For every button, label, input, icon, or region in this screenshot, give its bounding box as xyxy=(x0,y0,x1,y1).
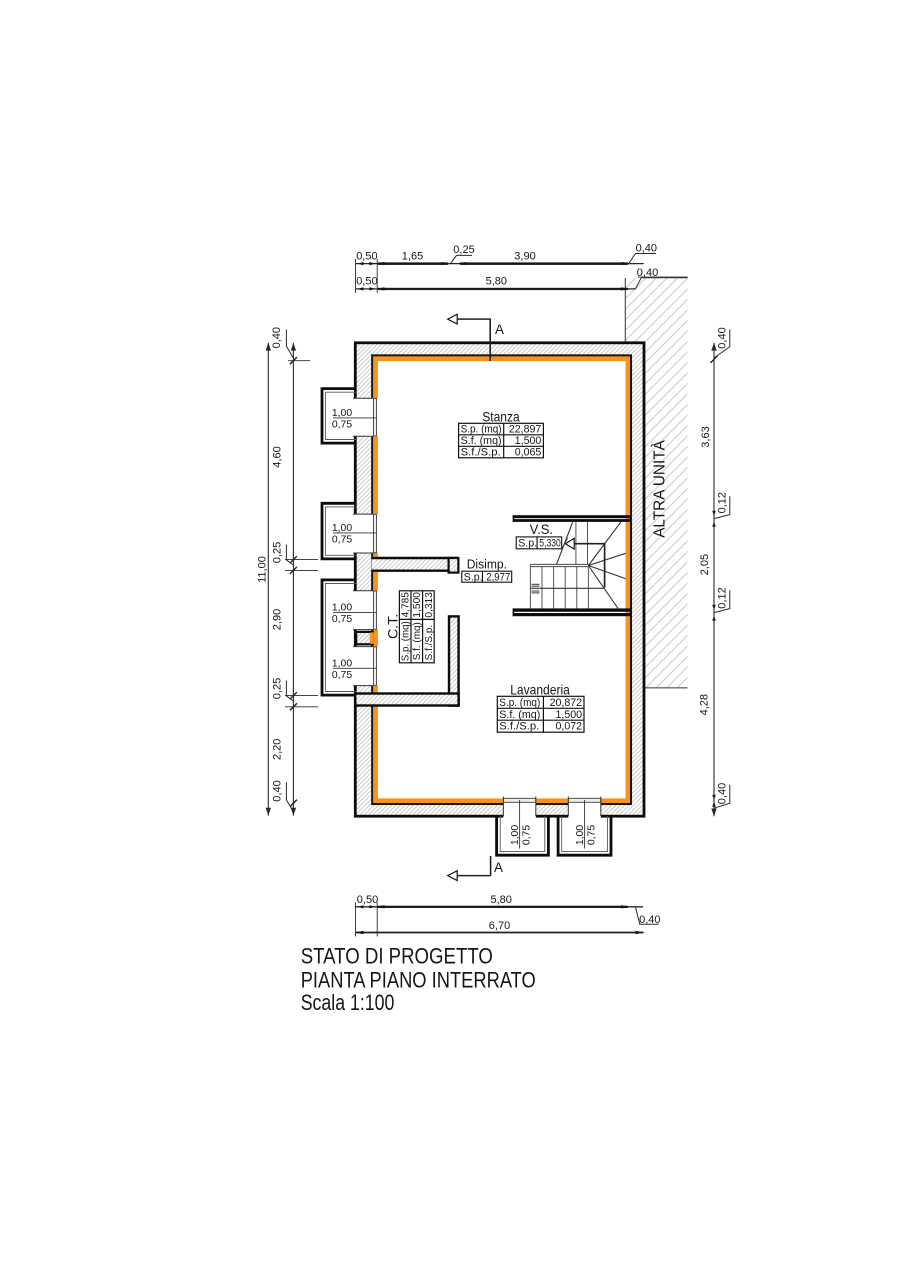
svg-text:Stanza: Stanza xyxy=(482,410,520,425)
svg-text:0,40: 0,40 xyxy=(717,327,729,348)
svg-text:PIANTA PIANO INTERRATO: PIANTA PIANO INTERRATO xyxy=(301,967,536,992)
svg-text:S.f./S.p.: S.f./S.p. xyxy=(424,625,435,661)
svg-text:V.S.: V.S. xyxy=(530,521,553,537)
svg-text:S.p. (mq): S.p. (mq) xyxy=(461,424,502,436)
svg-text:2,90: 2,90 xyxy=(272,609,284,630)
svg-text:3,90: 3,90 xyxy=(514,250,535,262)
svg-text:S.p. (mq): S.p. (mq) xyxy=(499,697,540,709)
svg-text:2,20: 2,20 xyxy=(272,739,284,760)
svg-text:1,00: 1,00 xyxy=(332,408,352,419)
svg-text:A: A xyxy=(494,860,503,875)
svg-text:0,40: 0,40 xyxy=(271,327,283,348)
svg-text:S.p.: S.p. xyxy=(464,571,483,583)
svg-text:0,065: 0,065 xyxy=(515,447,542,459)
svg-text:A: A xyxy=(495,322,504,337)
svg-text:S.f. (mq): S.f. (mq) xyxy=(499,709,540,721)
svg-text:ALTRA UNITÀ: ALTRA UNITÀ xyxy=(652,440,669,538)
svg-text:0,75: 0,75 xyxy=(521,825,532,845)
svg-text:1,65: 1,65 xyxy=(402,250,423,262)
svg-text:0,75: 0,75 xyxy=(332,535,352,546)
svg-text:1,500: 1,500 xyxy=(555,709,582,721)
svg-text:1,500: 1,500 xyxy=(412,592,423,618)
svg-text:0,25: 0,25 xyxy=(272,678,284,699)
svg-text:1,00: 1,00 xyxy=(575,825,586,845)
svg-text:S.f./S.p.: S.f./S.p. xyxy=(499,721,539,733)
svg-text:5,80: 5,80 xyxy=(490,894,511,906)
svg-text:0,072: 0,072 xyxy=(555,721,582,733)
svg-text:4,60: 4,60 xyxy=(272,446,284,467)
svg-text:0,75: 0,75 xyxy=(332,670,352,681)
svg-text:0,75: 0,75 xyxy=(332,614,352,625)
svg-text:0,40: 0,40 xyxy=(636,242,657,254)
svg-text:1,00: 1,00 xyxy=(510,825,521,845)
svg-text:6,70: 6,70 xyxy=(489,920,510,932)
svg-text:S.f. (mq): S.f. (mq) xyxy=(412,622,423,660)
svg-text:0,50: 0,50 xyxy=(357,894,378,906)
svg-text:4,785: 4,785 xyxy=(401,592,412,618)
svg-text:0,75: 0,75 xyxy=(586,825,597,845)
svg-text:0,12: 0,12 xyxy=(717,492,729,513)
svg-text:0,25: 0,25 xyxy=(272,542,284,563)
svg-text:5,80: 5,80 xyxy=(486,276,507,288)
svg-text:22,897: 22,897 xyxy=(509,424,542,436)
svg-text:0,50: 0,50 xyxy=(356,250,377,262)
svg-text:0,12: 0,12 xyxy=(717,587,729,608)
svg-text:1,00: 1,00 xyxy=(332,523,352,534)
svg-text:0,40: 0,40 xyxy=(637,267,658,279)
svg-text:4,28: 4,28 xyxy=(699,694,711,715)
svg-text:0,313: 0,313 xyxy=(424,592,435,618)
svg-text:Scala 1:100: Scala 1:100 xyxy=(301,990,395,1015)
svg-text:1,00: 1,00 xyxy=(332,659,352,670)
svg-text:Disimp.: Disimp. xyxy=(467,556,507,571)
svg-text:1,00: 1,00 xyxy=(332,603,352,614)
svg-text:0,40: 0,40 xyxy=(717,783,729,804)
svg-text:0,40: 0,40 xyxy=(272,780,284,801)
svg-text:S.p.: S.p. xyxy=(518,537,537,549)
svg-text:20,872: 20,872 xyxy=(550,697,583,709)
svg-text:0,75: 0,75 xyxy=(332,420,352,431)
svg-text:S.f./S.p.: S.f./S.p. xyxy=(461,447,501,459)
svg-text:0,25: 0,25 xyxy=(453,244,474,256)
svg-text:5,330: 5,330 xyxy=(539,537,561,549)
svg-text:3,63: 3,63 xyxy=(700,426,712,447)
svg-text:S.p. (mq): S.p. (mq) xyxy=(401,621,412,661)
svg-text:2,977: 2,977 xyxy=(486,571,510,583)
svg-text:Lavanderia: Lavanderia xyxy=(510,683,570,698)
svg-text:2,05: 2,05 xyxy=(699,554,711,575)
svg-text:0,40: 0,40 xyxy=(639,914,660,926)
svg-text:0,50: 0,50 xyxy=(356,276,377,288)
svg-text:STATO DI PROGETTO: STATO DI PROGETTO xyxy=(301,943,493,968)
svg-text:11,00: 11,00 xyxy=(256,556,268,583)
svg-text:1,500: 1,500 xyxy=(515,435,542,447)
svg-text:S.f. (mq): S.f. (mq) xyxy=(461,435,502,447)
